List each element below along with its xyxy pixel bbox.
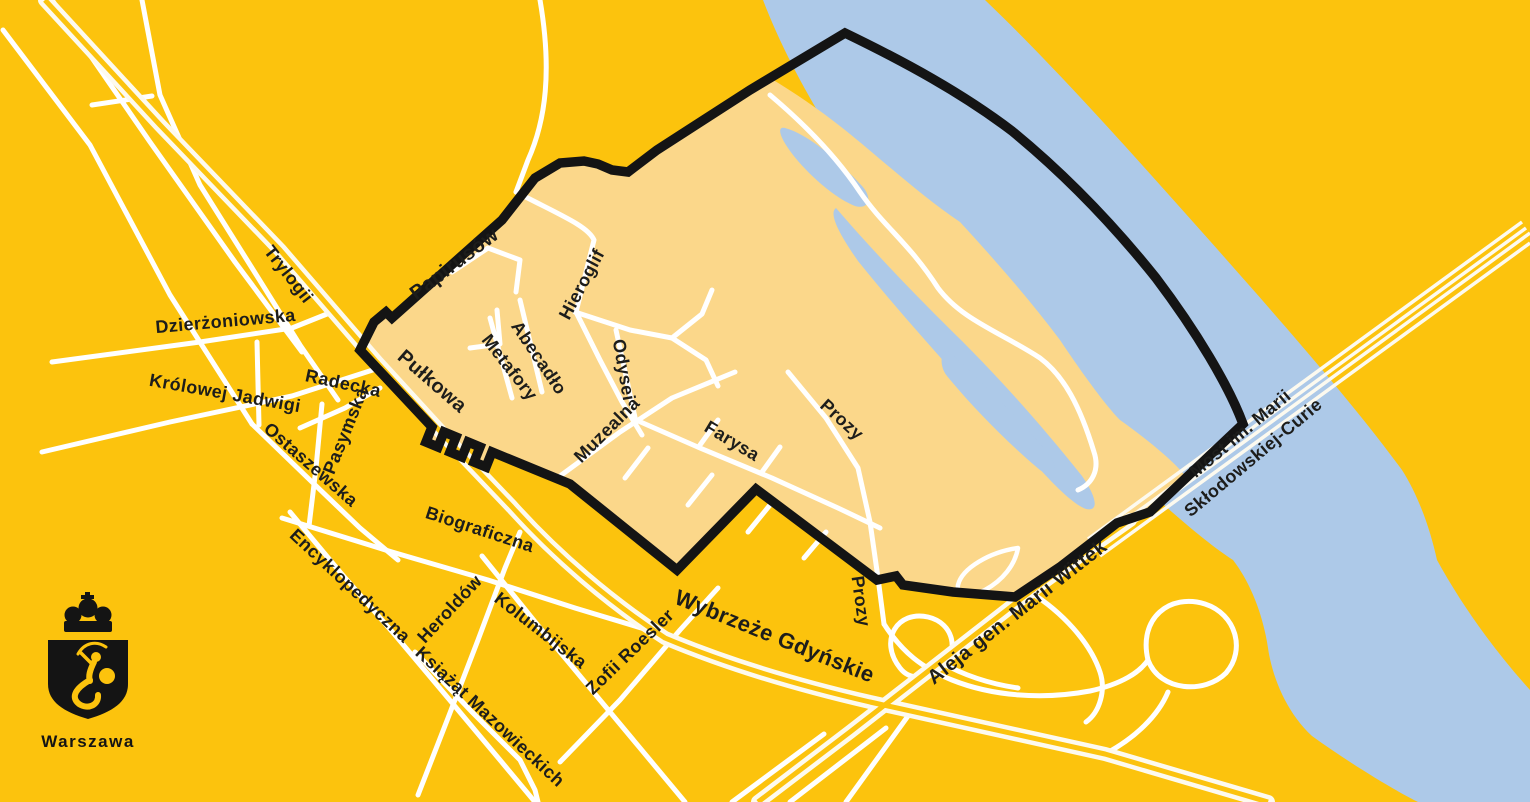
map-stage: TrylogiiDzierżoniowskaKrólowej JadwigiRa… [0, 0, 1530, 802]
connector-road [257, 342, 259, 425]
map-canvas: TrylogiiDzierżoniowskaKrólowej JadwigiRa… [0, 0, 1530, 802]
logo-wordmark: Warszawa [41, 732, 135, 751]
